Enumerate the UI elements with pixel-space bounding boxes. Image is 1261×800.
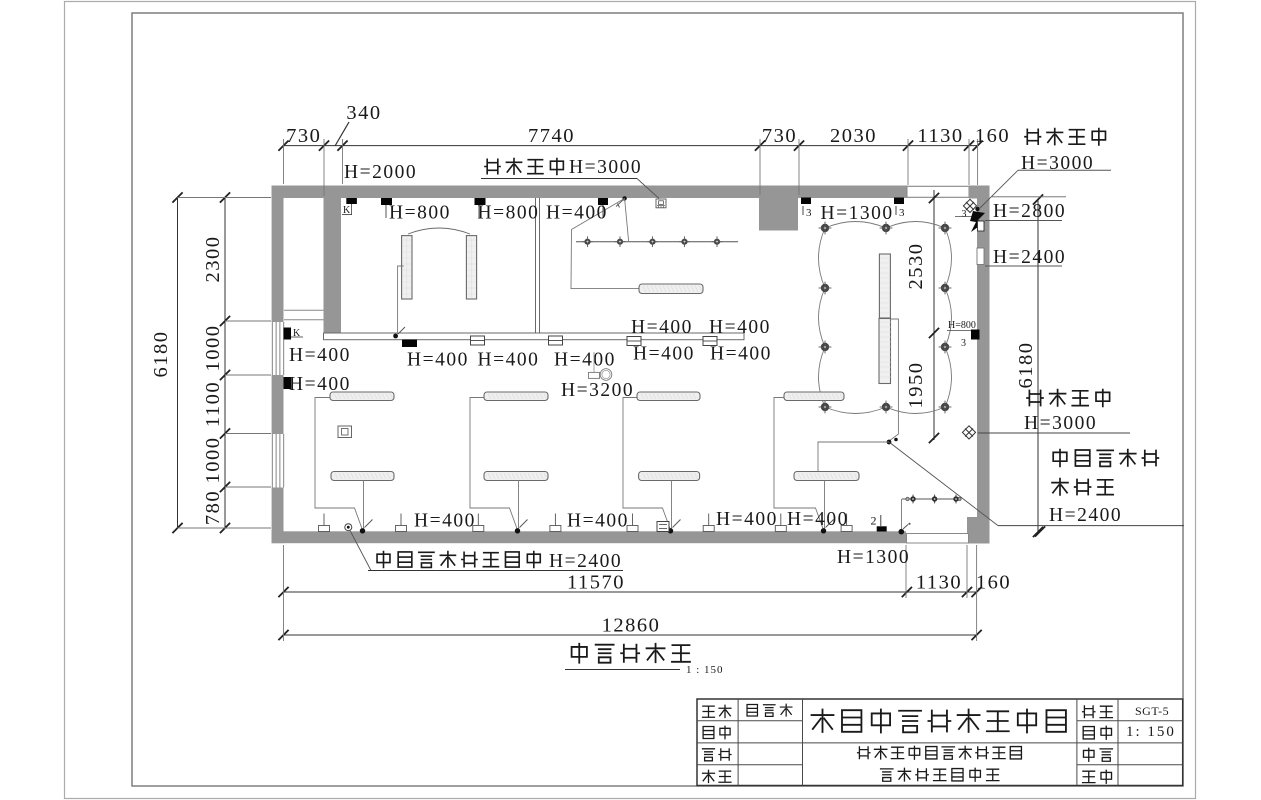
svg-text:340: 340 [346, 102, 381, 124]
svg-text:H=400: H=400 [716, 509, 778, 530]
svg-text:H=400: H=400 [289, 374, 351, 395]
svg-text:H=800: H=800 [948, 320, 976, 331]
svg-text:H=800: H=800 [389, 203, 451, 224]
svg-text:1000: 1000 [202, 437, 224, 484]
svg-text:1950: 1950 [905, 362, 927, 409]
svg-text:7740: 7740 [528, 125, 575, 147]
svg-text:1 : 150: 1 : 150 [686, 664, 724, 676]
svg-text:3: 3 [962, 209, 967, 220]
svg-text:12860: 12860 [602, 615, 661, 637]
svg-text:H=3200: H=3200 [561, 380, 634, 401]
svg-text:3: 3 [899, 207, 905, 219]
svg-text:H=400: H=400 [414, 511, 476, 532]
svg-text:H=2400: H=2400 [549, 551, 622, 572]
svg-text:H=400: H=400 [633, 344, 695, 365]
svg-text:H=400: H=400 [709, 317, 771, 338]
svg-text:2530: 2530 [905, 243, 927, 290]
svg-text:6180: 6180 [150, 331, 172, 378]
svg-text:730: 730 [286, 125, 321, 147]
svg-text:H=400: H=400 [567, 511, 629, 532]
svg-text:H=2000: H=2000 [344, 162, 417, 183]
svg-text:3: 3 [961, 338, 966, 349]
svg-text:160: 160 [976, 572, 1011, 594]
svg-text:H=3000: H=3000 [569, 157, 642, 178]
svg-text:H=400: H=400 [710, 344, 772, 365]
svg-text:1000: 1000 [202, 325, 224, 372]
svg-text:H=400: H=400 [554, 350, 616, 371]
svg-text:H=400: H=400 [289, 345, 351, 366]
svg-text:H=400: H=400 [631, 317, 693, 338]
svg-text:H=400: H=400 [787, 509, 849, 530]
svg-text:H=2800: H=2800 [993, 201, 1066, 222]
svg-text:730: 730 [762, 125, 797, 147]
svg-text:SGT-5: SGT-5 [1135, 704, 1169, 718]
svg-text:H=400: H=400 [546, 203, 608, 224]
svg-text:1100: 1100 [202, 381, 224, 427]
svg-text:160: 160 [975, 125, 1010, 147]
svg-text:H=3000: H=3000 [1024, 413, 1097, 434]
svg-text:H=1300: H=1300 [821, 203, 894, 224]
svg-text:H=3000: H=3000 [1021, 153, 1094, 174]
svg-text:H=400: H=400 [407, 350, 469, 371]
svg-text:2030: 2030 [830, 125, 877, 147]
svg-text:1130: 1130 [916, 572, 962, 594]
svg-text:H=800: H=800 [478, 203, 540, 224]
svg-text:H=1300: H=1300 [837, 547, 910, 568]
svg-text:H=400: H=400 [478, 350, 540, 371]
svg-text:6180: 6180 [1015, 342, 1037, 389]
svg-text:1130: 1130 [917, 125, 963, 147]
svg-text:3: 3 [806, 207, 812, 219]
svg-text:2300: 2300 [202, 236, 224, 283]
svg-text:780: 780 [202, 490, 224, 525]
svg-text:H=2400: H=2400 [1049, 505, 1122, 526]
svg-text:1: 150: 1: 150 [1126, 724, 1176, 740]
svg-text:2: 2 [871, 514, 877, 528]
svg-text:H=2400: H=2400 [993, 247, 1066, 268]
svg-text:11570: 11570 [567, 572, 625, 594]
